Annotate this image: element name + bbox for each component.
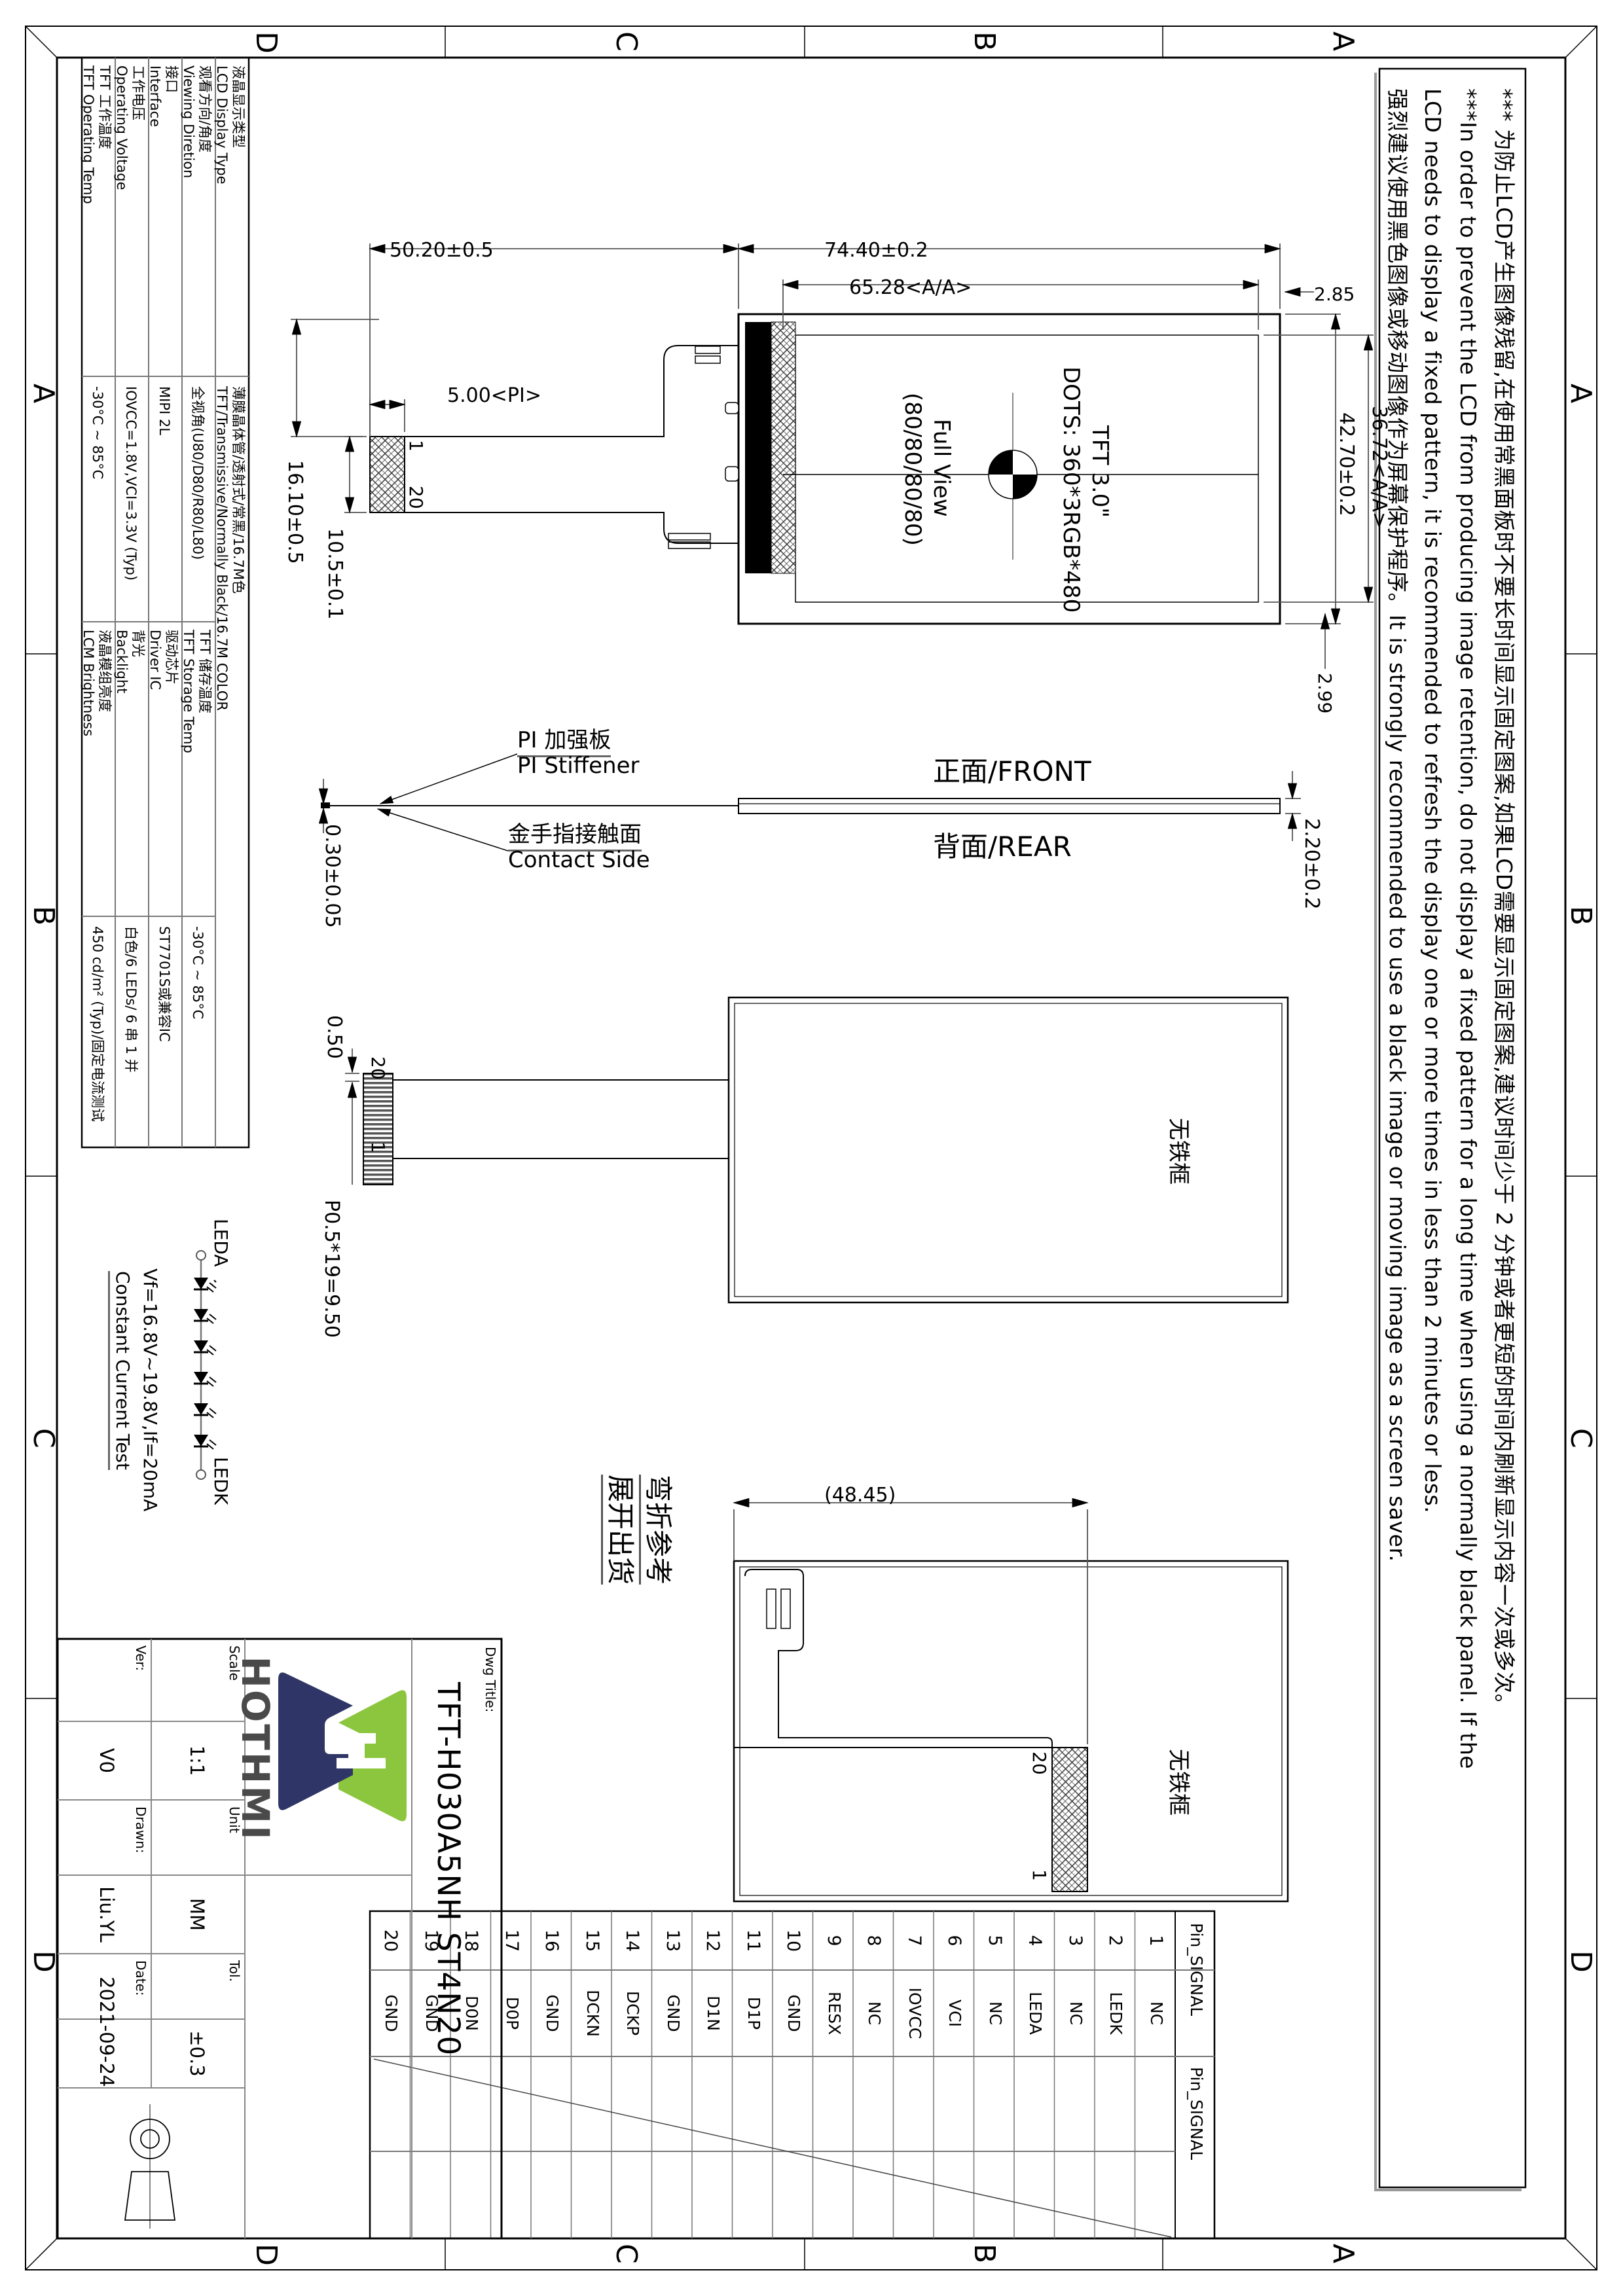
- pin-row-no: 11: [743, 1911, 763, 1970]
- led-vf-label: Vf=16.8V~19.8V,If=20mA: [139, 1268, 160, 1511]
- side-label-rear: 背面/REAR: [933, 831, 1072, 863]
- spec-r5-label: TFT 工作温度TFT Operating Temp: [80, 65, 113, 204]
- pin-row-no: 20: [380, 1911, 401, 1970]
- zone-letter-top-b: B: [1563, 906, 1597, 925]
- spec-r1-value-cn: 薄膜晶体管/透射式/常黑/16.7M色: [230, 386, 246, 594]
- pin-row-no: 6: [944, 1911, 964, 1970]
- note-line-3: LCD needs to display a fixed pattern, it…: [1420, 88, 1445, 1513]
- pin-row-no: 13: [663, 1911, 683, 1970]
- pin-row-no: 4: [1025, 1911, 1045, 1970]
- scale-value: 1:1: [186, 1721, 208, 1800]
- pin-row-signal: NC: [1066, 1970, 1085, 2056]
- pin-row-no: 10: [783, 1911, 803, 1970]
- zone-letter-right-d: D: [249, 2244, 282, 2266]
- zone-letter-right-b: B: [967, 2244, 1000, 2263]
- spec-r3-value: MIPI 2L: [156, 386, 172, 435]
- pin-row-signal: DCKN: [583, 1970, 602, 2056]
- spec-r3-value2: ST7701S或兼容IC: [156, 926, 172, 1042]
- sheet-border: [26, 26, 1597, 2270]
- tol-value: ±0.3: [186, 2019, 208, 2088]
- zone-letter-right-c: C: [609, 2244, 642, 2264]
- front-dimensions: [291, 243, 1374, 669]
- bend-ref-label: 弯折参考: [639, 1475, 674, 1585]
- front-pin1-label: 1: [405, 440, 426, 452]
- projection-symbol: [125, 2104, 175, 2229]
- zone-letter-bottom-b: B: [26, 906, 60, 925]
- side-label-contact: 金手指接触面Contact Side: [508, 822, 650, 873]
- dim-2-99: 2.99: [1314, 673, 1335, 713]
- pin-row-no: 15: [582, 1911, 602, 1970]
- spec-r4-value2: 白色/6 LEDs/ 6 串 1 并: [123, 926, 139, 1073]
- led-test-label: Constant Current Test: [108, 1271, 133, 1470]
- pin-row-no: 8: [864, 1911, 884, 1970]
- spec-r4-label: 工作电压Operating Voltage: [113, 65, 146, 190]
- spec-r5-label-en: TFT Operating Temp: [81, 65, 96, 204]
- zone-letter-top-a: A: [1563, 384, 1597, 403]
- unfold-pin20-label: 20: [1029, 1751, 1049, 1775]
- front-label-fullview: Full View: [928, 419, 954, 517]
- zone-letter-right-a: A: [1326, 2244, 1359, 2263]
- spec-r2-label: 观看方向/角度Viewing Diretion: [180, 65, 213, 178]
- spec-r4-label2-cn: 背光: [130, 630, 146, 657]
- pin-row-signal: RESX: [824, 1970, 843, 2056]
- pin-row-signal: IOVCC: [905, 1970, 924, 2056]
- ver-value: V0: [96, 1721, 117, 1800]
- rear-no-frame-label: 无铁框: [1165, 1118, 1191, 1185]
- spec-r2-label-cn: 观看方向/角度: [197, 65, 213, 152]
- side-label-pi-en: PI Stiffener: [517, 753, 640, 779]
- drawing-linework: [0, 0, 1623, 2296]
- unit-value: MM: [186, 1875, 208, 1954]
- dim-16-10: 16.10±0.5: [283, 460, 306, 564]
- zone-letter-bottom-c: C: [26, 1428, 60, 1448]
- tol-label: Tol.: [227, 1960, 242, 1982]
- spec-r4-value: IOVCC=1.8V,VCI=3.3V (Typ): [123, 386, 139, 581]
- pin-row-signal: NC: [1146, 1970, 1165, 2056]
- pin-row-signal: GND: [784, 1970, 803, 2056]
- spec-r2-label2: TFT 储存温度TFT Storage Temp: [180, 630, 213, 753]
- pin-row-signal: GND: [542, 1970, 561, 2056]
- unfold-pin1-label: 1: [1029, 1869, 1049, 1881]
- dim-2-20: 2.20±0.2: [1300, 818, 1323, 910]
- zone-letter-left-c: C: [609, 31, 642, 52]
- dim-65-28: 65.28<A/A>: [849, 277, 972, 300]
- note-line-1: *** 为防止LCD产生图像残留,在使用常黑面板时不要长时间显示固定图案,如果L…: [1491, 88, 1516, 1715]
- pin-row-signal: D0P: [502, 1970, 521, 2056]
- led-cathode-label: LEDK: [210, 1457, 231, 1505]
- pin-row-no: 17: [501, 1911, 522, 1970]
- drawing-sheet-landscape: A B C D A B C D A B C D A B C D *** 为防止L…: [0, 0, 1623, 2296]
- spec-r2-label2-en: TFT Storage Temp: [181, 630, 196, 753]
- spec-r5-label-cn: TFT 工作温度: [97, 65, 113, 149]
- spec-r1-value: 薄膜晶体管/透射式/常黑/16.7M色TFT/Transmissive/Norm…: [213, 386, 246, 711]
- spec-r5-value: -30°C ~ 85°C: [90, 386, 105, 479]
- drawing-page: A B C D A B C D A B C D A B C D *** 为防止L…: [0, 0, 1623, 2296]
- dim-50-20: 50.20±0.5: [390, 240, 494, 262]
- pin-row-no: 2: [1105, 1911, 1125, 1970]
- spec-r2-label-en: Viewing Diretion: [181, 65, 196, 178]
- pin-row-no: 7: [904, 1911, 924, 1970]
- spec-r2-label2-cn: TFT 储存温度: [197, 630, 213, 713]
- spec-r4-label-en: Operating Voltage: [114, 65, 130, 190]
- side-label-pi-stiffener: PI 加强板PI Stiffener: [517, 728, 640, 779]
- rear-view: [345, 997, 1288, 1302]
- pin-row-signal: LEDK: [1106, 1970, 1125, 2056]
- date-label: Date:: [133, 1960, 148, 1996]
- pin-row-no: 14: [622, 1911, 642, 1970]
- pin-row-no: 9: [824, 1911, 844, 1970]
- front-label-angles: (80/80/80/80): [900, 393, 925, 546]
- spec-r5-value2: 450 cd/m² (Typ)/固定电流测试: [90, 926, 105, 1122]
- pin-row-no: 1: [1146, 1911, 1166, 1970]
- dim-pitch: P0.5*19=9.50: [320, 1200, 343, 1338]
- zone-letter-bottom-a: A: [26, 384, 60, 403]
- led-symbols: [194, 1278, 216, 1449]
- dim-10-5: 10.5±0.1: [323, 528, 346, 620]
- front-label-dots: DOTS: 360*3RGB*480: [1058, 367, 1084, 613]
- note-line-4: 强烈建议使用黑色图像或移动图像作为屏幕保护程序。It is strongly r…: [1385, 88, 1410, 1562]
- pin-row-signal: NC: [985, 1970, 1004, 2056]
- spec-r3-label: 接口Interface: [147, 65, 179, 127]
- rear-pin20-label: 20: [367, 1056, 388, 1080]
- pin-row-signal: D1P: [744, 1970, 763, 2056]
- spec-r4-label2-en: Backlight: [114, 630, 130, 694]
- spec-r3-label-en: Interface: [147, 65, 163, 127]
- side-label-front: 正面/FRONT: [933, 756, 1091, 787]
- side-view: [321, 754, 1301, 851]
- pin-row-no: 3: [1065, 1911, 1085, 1970]
- spec-r1-value-en: TFT/Transmissive/Normally Black/16.7M CO…: [214, 386, 230, 711]
- drawn-label: Drawn:: [133, 1806, 148, 1854]
- drawn-value: Liu.YL: [96, 1875, 117, 1954]
- spec-r4-label-cn: 工作电压: [130, 65, 146, 120]
- zone-letter-bottom-d: D: [26, 1950, 60, 1973]
- zone-letter-left-b: B: [967, 31, 1000, 51]
- spec-r3-label2-cn: 驱动芯片: [164, 630, 179, 685]
- spec-r2-value: 全视角(U80/D80/R80/L80): [190, 386, 206, 560]
- spec-r3-label2: 驱动芯片Driver IC: [147, 630, 179, 690]
- dim-2-85: 2.85: [1314, 284, 1355, 305]
- spec-r1-label-cn: 液晶显示类型: [230, 65, 246, 148]
- ver-label: Ver:: [133, 1645, 148, 1671]
- pin-row-signal: DCKP: [623, 1970, 642, 2056]
- zone-letter-left-a: A: [1326, 31, 1359, 51]
- pin-row-signal: GND: [381, 1970, 400, 2056]
- dim-48-45: (48.45): [824, 1484, 896, 1507]
- dim-5-00-pi: 5.00<PI>: [447, 385, 541, 408]
- side-label-contact-en: Contact Side: [508, 847, 650, 873]
- zone-letter-top-d: D: [1563, 1950, 1597, 1973]
- front-pin20-label: 20: [405, 486, 426, 509]
- dim-42-70: 42.70±0.2: [1335, 412, 1358, 516]
- spec-r1-label: 液晶显示类型LCD Display Type: [213, 65, 246, 185]
- pin-row-signal: GND: [663, 1970, 682, 2056]
- unfold-view: [734, 1503, 1288, 1901]
- pin-row-signal: D1N: [703, 1970, 722, 2056]
- pin-row-no: 5: [985, 1911, 1005, 1970]
- unfold-no-frame-label: 无铁框: [1165, 1749, 1191, 1816]
- pin-row-signal: NC: [864, 1970, 883, 2056]
- dim-36-72: 36.72<A/A>: [1368, 406, 1391, 528]
- spec-r4-label2: 背光Backlight: [113, 630, 146, 694]
- zone-letter-top-c: C: [1563, 1428, 1597, 1448]
- pin-table-header-2: Pin_SIGNAL: [1186, 2067, 1205, 2160]
- unit-label: Unit: [227, 1806, 242, 1833]
- front-view: [370, 314, 1280, 624]
- spec-r5-label2-cn: 液晶模组亮度: [97, 630, 113, 712]
- zone-letter-left-d: D: [249, 31, 282, 54]
- front-label-tft: TFT 3.0": [1087, 425, 1112, 518]
- spec-r5-label2-en: LCM Brightness: [81, 630, 96, 736]
- led-circuit: [194, 1251, 216, 1479]
- dim-0-30: 0.30±0.05: [321, 824, 344, 928]
- spec-r3-label2-en: Driver IC: [147, 630, 163, 690]
- spec-r5-label2: 液晶模组亮度LCM Brightness: [80, 630, 113, 736]
- ship-flat-label: 展开出货: [601, 1475, 636, 1585]
- dwg-title-value: TFT-H030A5NH ST4N20: [430, 1682, 465, 2056]
- spec-r3-label-cn: 接口: [164, 65, 179, 93]
- pin-table-header-1: Pin_SIGNAL: [1186, 1923, 1205, 2016]
- dim-0-50: 0.50: [323, 1015, 346, 1059]
- pin-row-signal: VCI: [945, 1970, 964, 2056]
- centroid-symbol: [783, 393, 1258, 560]
- led-anode-label: LEDA: [210, 1219, 231, 1267]
- dwg-title-label: Dwg Title:: [483, 1647, 498, 1712]
- rear-pin1-label: 1: [367, 1141, 388, 1153]
- note-line-2: ***In order to prevent the LCD from prod…: [1455, 88, 1480, 1769]
- scale-label: Scale: [227, 1645, 242, 1681]
- spec-r2-value2: -30°C ~ 85°C: [190, 926, 206, 1019]
- dim-74-40: 74.40±0.2: [824, 240, 928, 262]
- date-value: 2021-09-24: [96, 1977, 117, 2087]
- hothmi-logo-icon: [278, 1672, 407, 1821]
- pin-row-no: 12: [702, 1911, 723, 1970]
- spec-r1-label-en: LCD Display Type: [214, 65, 230, 185]
- pin-row-signal: LEDA: [1025, 1970, 1044, 2056]
- pin-row-no: 16: [541, 1911, 562, 1970]
